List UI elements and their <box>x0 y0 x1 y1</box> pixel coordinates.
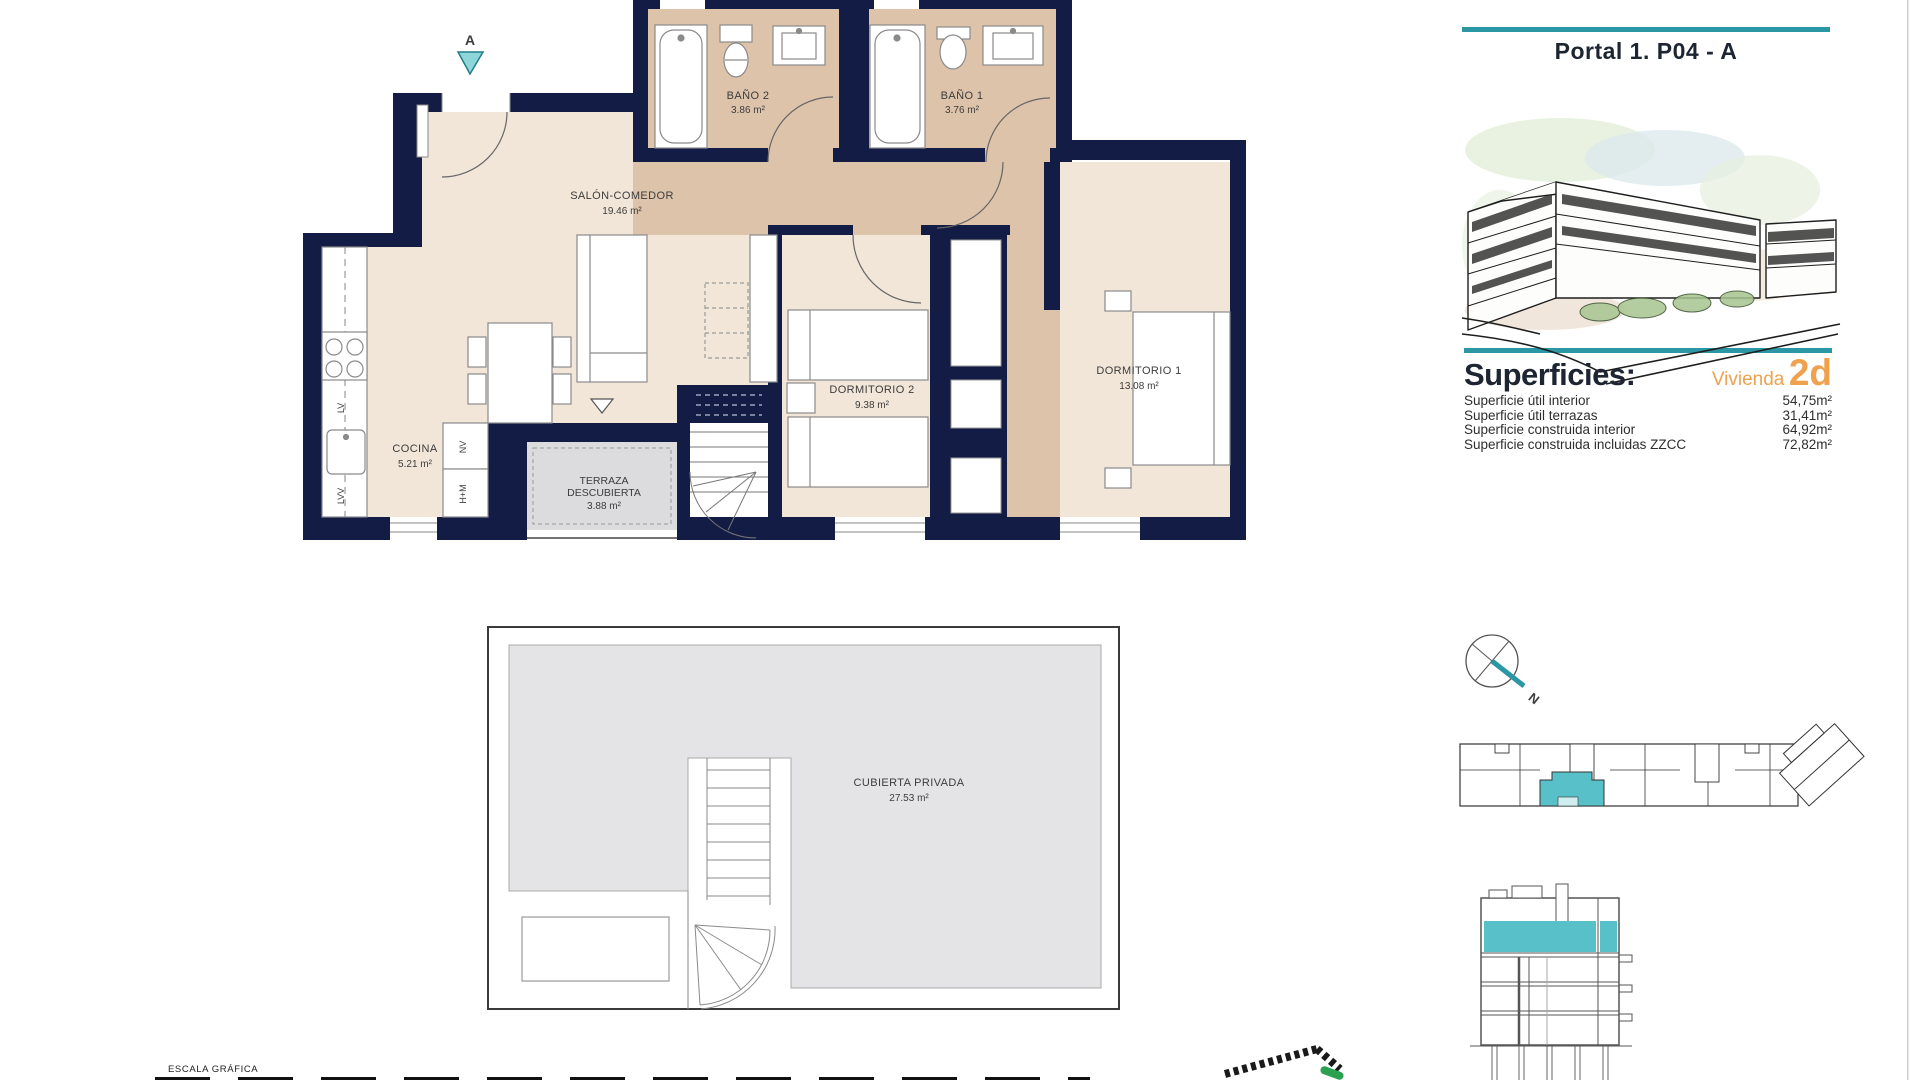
closet <box>951 458 1001 513</box>
superficie-value: 72,82m² <box>1782 438 1832 453</box>
hall-floor <box>633 150 1058 235</box>
terraza-area: 3.88 m² <box>587 501 622 512</box>
main-floor-plan: A SALÓN-COMEDOR 19.46 m² COCINA 5.21 m² … <box>303 0 1246 540</box>
oven-label: NV <box>458 441 468 454</box>
superficies-row: Superficie útil interior 54,75m² <box>1464 394 1832 409</box>
terraza-label-2: DESCUBIERTA <box>567 487 641 499</box>
closet <box>951 240 1001 366</box>
dining-table <box>488 323 552 423</box>
vivienda-label: Vivienda <box>1712 369 1785 390</box>
page-border <box>1907 0 1909 1080</box>
superficie-label: Superficie construida interior <box>1464 423 1635 438</box>
fridge-label: H+M <box>458 484 468 503</box>
chair <box>553 374 571 404</box>
superficies-row: Superficie construida interior 64,92m² <box>1464 423 1832 438</box>
washer-label: LVV <box>336 488 346 504</box>
nightstand <box>1105 291 1131 311</box>
superficie-label: Superficie útil terrazas <box>1464 409 1598 424</box>
closet <box>951 380 1001 428</box>
cocina-label: COCINA <box>392 443 437 455</box>
site-key-plan <box>1460 715 1864 806</box>
cubierta-label: CUBIERTA PRIVADA <box>854 777 965 789</box>
superficie-label: Superficie útil interior <box>1464 394 1590 409</box>
superficie-value: 54,75m² <box>1782 394 1832 409</box>
salon-label: SALÓN-COMEDOR <box>570 189 674 202</box>
nightstand <box>787 383 815 413</box>
dorm1-area: 13.08 m² <box>1119 381 1159 392</box>
north-label: N <box>1526 690 1543 708</box>
superficies-table: Superficie útil interior 54,75m² Superfi… <box>1464 394 1832 452</box>
scale-label: ESCALA GRÁFICA <box>168 1064 258 1075</box>
chair <box>553 337 571 367</box>
teal-rule-top <box>1462 27 1830 32</box>
window-bano1 <box>874 0 919 9</box>
vivienda-tag: Vivienda 2d <box>1712 352 1832 394</box>
entrance-marker: A <box>458 32 483 74</box>
bed <box>788 417 928 487</box>
brand-logo <box>1225 1049 1345 1080</box>
salon-area: 19.46 m² <box>602 206 642 217</box>
plan-sheet: A SALÓN-COMEDOR 19.46 m² COCINA 5.21 m² … <box>0 0 1920 1080</box>
unit-terrace <box>1558 797 1578 806</box>
dorm2-area: 9.38 m² <box>855 400 890 411</box>
entrance-triangle-icon <box>458 52 483 74</box>
dorm1-label: DORMITORIO 1 <box>1096 365 1181 377</box>
section-marker-label: A <box>465 32 475 48</box>
building-section <box>1470 884 1632 1080</box>
window-cocina <box>390 517 437 540</box>
logo-ridge-left <box>1225 1049 1317 1074</box>
superficies-header: Superficies: Vivienda 2d <box>1464 352 1832 394</box>
sofa <box>577 235 647 382</box>
toilet <box>720 25 752 42</box>
cocina-area: 5.21 m² <box>398 459 433 470</box>
radiator <box>417 105 428 157</box>
roof-planter <box>522 917 669 981</box>
bed <box>788 310 928 380</box>
nightstand <box>1105 468 1131 488</box>
cubierta-area: 27.53 m² <box>889 793 929 804</box>
bano2-area: 3.86 m² <box>731 105 766 116</box>
roof-plan: CUBIERTA PRIVADA 27.53 m² <box>488 627 1119 1009</box>
wardrobe <box>750 235 777 382</box>
bano1-label: BAÑO 1 <box>941 89 984 102</box>
chair <box>468 374 486 404</box>
superficie-label: Superficie construida incluidas ZZCC <box>1464 438 1686 453</box>
superficie-value: 64,92m² <box>1782 423 1832 438</box>
section-highlight-floor <box>1484 921 1596 952</box>
vivienda-code: 2d <box>1789 352 1832 393</box>
superficie-value: 31,41m² <box>1782 409 1832 424</box>
building-illustration <box>1462 118 1840 384</box>
bano2-label: BAÑO 2 <box>727 89 770 102</box>
plan-graphics: A SALÓN-COMEDOR 19.46 m² COCINA 5.21 m² … <box>0 0 1920 1080</box>
chair <box>468 337 486 367</box>
superficies-row: Superficie construida incluidas ZZCC 72,… <box>1464 438 1832 453</box>
bano1-area: 3.76 m² <box>945 105 980 116</box>
logo-ridge-right <box>1317 1049 1340 1069</box>
compass: N <box>1466 635 1542 707</box>
window-dorm2 <box>835 517 925 540</box>
window-bano2 <box>660 0 705 9</box>
page-title: Portal 1. P04 - A <box>1462 38 1830 65</box>
dishwasher-label: LV <box>336 403 346 413</box>
dorm2-label: DORMITORIO 2 <box>829 384 914 396</box>
superficies-heading: Superficies: <box>1464 357 1635 393</box>
superficies-row: Superficie útil terrazas 31,41m² <box>1464 409 1832 424</box>
window-dorm1 <box>1060 517 1140 540</box>
terraza-label-1: TERRAZA <box>579 475 628 487</box>
stair-landing-block <box>690 385 768 423</box>
